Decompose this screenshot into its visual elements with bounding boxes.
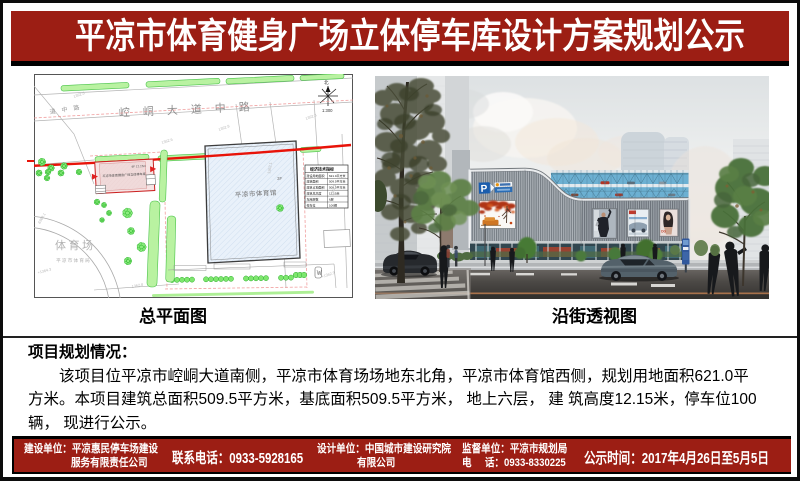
svg-text:停车位: 停车位 bbox=[307, 202, 316, 207]
svg-text:9F 12.15m: 9F 12.15m bbox=[131, 164, 146, 169]
svg-text:建筑总高度: 建筑总高度 bbox=[307, 191, 322, 196]
svg-text:DG: DG bbox=[661, 230, 666, 234]
svg-text:3F: 3F bbox=[277, 176, 283, 181]
svg-text:车库层数: 车库层数 bbox=[307, 196, 319, 201]
svg-text:1:300: 1:300 bbox=[322, 108, 333, 113]
svg-text:6层: 6层 bbox=[329, 196, 334, 201]
svg-text:P: P bbox=[480, 184, 487, 195]
svg-text:621.0平方米: 621.0平方米 bbox=[329, 173, 346, 178]
svg-text:509.5平方米: 509.5平方米 bbox=[329, 179, 346, 184]
svg-text:建设用地面积: 建设用地面积 bbox=[307, 173, 325, 178]
svg-text:建筑面积: 建筑面积 bbox=[307, 179, 319, 184]
svg-text:100辆: 100辆 bbox=[329, 202, 337, 207]
svg-text:建筑占地面积: 建筑占地面积 bbox=[307, 185, 325, 190]
svg-text:北: 北 bbox=[324, 79, 329, 86]
svg-text:平凉市体育局: 平凉市体育局 bbox=[56, 257, 91, 264]
svg-text:经济技术指标: 经济技术指标 bbox=[310, 166, 334, 172]
svg-text:体育场: 体育场 bbox=[55, 238, 96, 252]
